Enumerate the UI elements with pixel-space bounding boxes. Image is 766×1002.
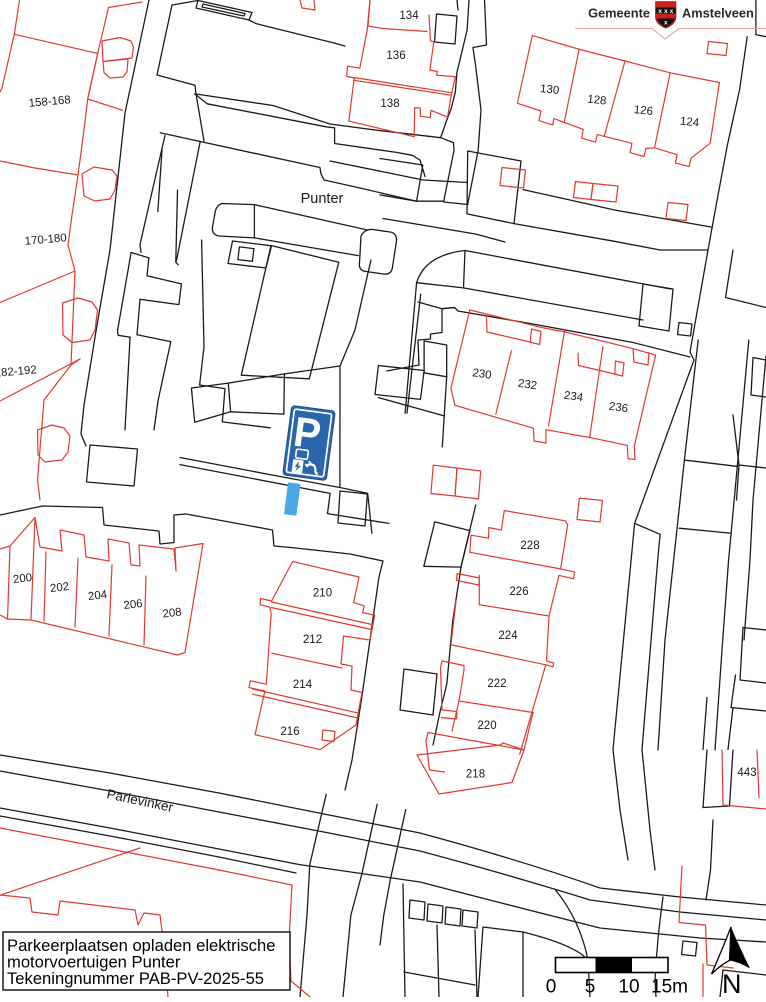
svg-text:136: 136: [386, 50, 405, 62]
svg-text:222: 222: [487, 678, 506, 690]
svg-text:15m: 15m: [651, 977, 688, 998]
svg-text:216: 216: [280, 726, 299, 738]
svg-text:204: 204: [87, 589, 108, 603]
svg-text:212: 212: [303, 634, 322, 646]
svg-text:134: 134: [399, 10, 419, 22]
svg-text:126: 126: [633, 104, 653, 118]
svg-text:x: x: [664, 8, 668, 15]
svg-text:220: 220: [477, 720, 496, 732]
svg-text:Amstelveen: Amstelveen: [682, 6, 754, 21]
svg-text:x: x: [670, 8, 674, 15]
svg-text:128: 128: [587, 94, 607, 108]
svg-text:N: N: [722, 969, 742, 997]
svg-text:130: 130: [539, 83, 559, 97]
svg-text:124: 124: [679, 116, 700, 130]
svg-text:x: x: [658, 8, 662, 15]
svg-text:210: 210: [313, 588, 332, 600]
svg-text:5: 5: [585, 977, 596, 998]
svg-text:228: 228: [520, 540, 539, 552]
svg-text:Gemeente: Gemeente: [588, 6, 650, 21]
svg-text:202: 202: [49, 581, 70, 595]
svg-text:138: 138: [380, 98, 399, 110]
svg-text:0: 0: [546, 977, 557, 998]
svg-text:206: 206: [123, 598, 144, 612]
svg-text:10: 10: [618, 977, 639, 998]
svg-text:200: 200: [12, 572, 33, 586]
svg-text:443: 443: [737, 767, 756, 779]
svg-text:226: 226: [509, 586, 528, 598]
svg-text:Punter: Punter: [301, 191, 344, 207]
svg-text:218: 218: [466, 769, 485, 781]
svg-text:214: 214: [293, 679, 313, 691]
svg-text:x: x: [664, 20, 668, 27]
svg-text:Tekeningnummer PAB-PV-2025-55: Tekeningnummer PAB-PV-2025-55: [7, 969, 264, 988]
svg-text:208: 208: [162, 606, 183, 620]
svg-text:224: 224: [498, 630, 518, 642]
